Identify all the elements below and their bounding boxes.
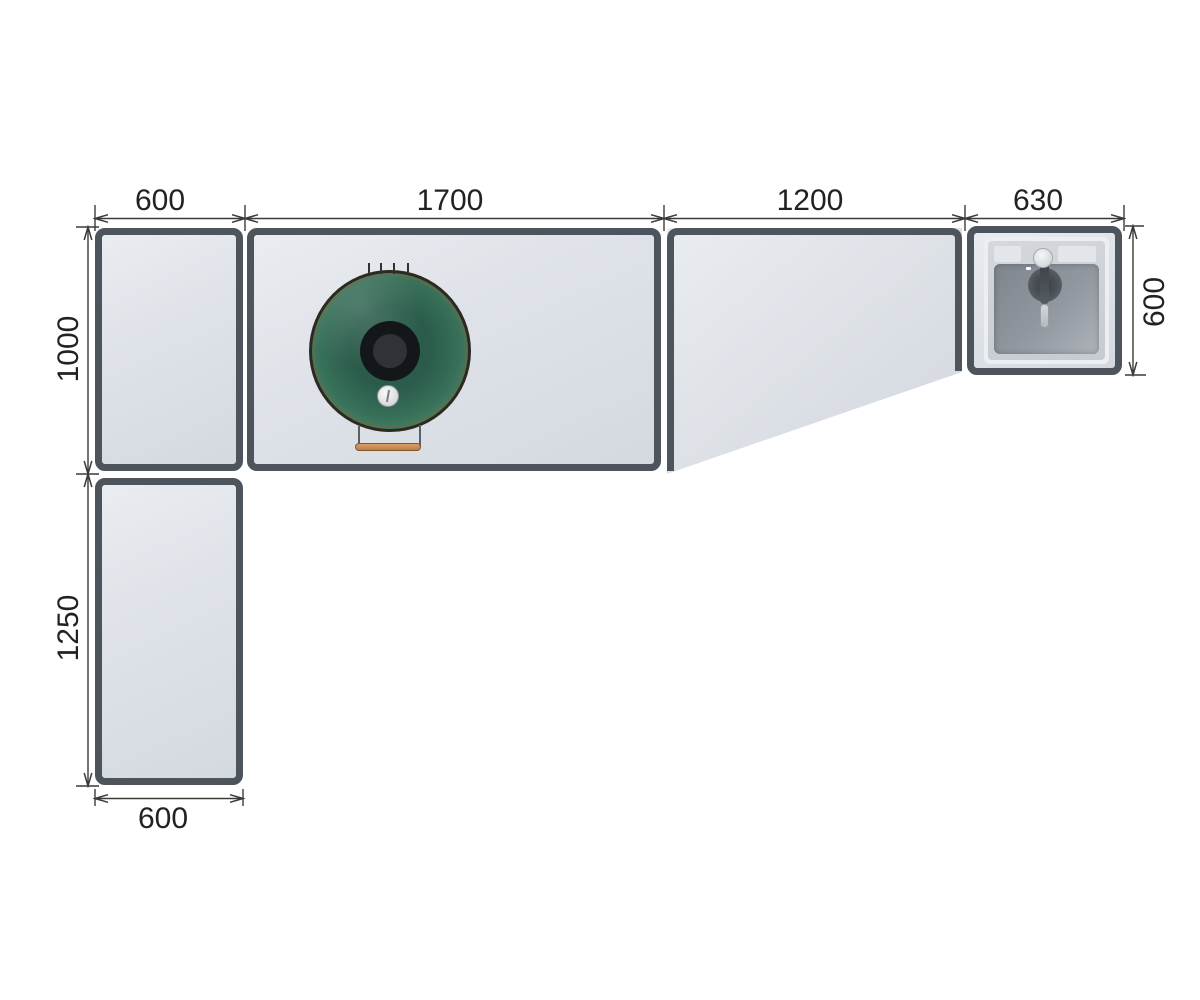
faucet-spout [1040,262,1049,304]
grill-hinge-tick [380,263,382,274]
dim-label-600-bottom: 600 [138,804,188,834]
dim-label-600-top: 600 [135,186,185,216]
sink-highlight [1026,267,1031,270]
kitchen-plan-canvas: 600 1700 1200 630 1000 1250 600 600 [0,0,1200,1000]
grill-top-vent-cap [373,334,407,368]
grill-hinge-tick [368,263,370,274]
worktop-surface [667,228,962,474]
grill-knob-slot [386,390,390,402]
faucet-base [1033,248,1053,268]
dim-label-1000: 1000 [54,316,84,383]
grill-daisy-wheel-knob [377,385,399,407]
module-return-cabinet [95,478,243,785]
grill-hinge-tick [393,263,395,274]
module-corner-cabinet [95,228,243,471]
faucet-handle [1040,304,1049,328]
sink-frame [984,237,1109,364]
grill-hinge-tick [407,263,409,274]
dim-label-1250: 1250 [54,595,84,662]
module-worktop-1200 [667,228,962,474]
dim-label-1200: 1200 [777,186,844,216]
grill-wooden-handle [355,443,421,451]
sink-deck [988,241,1105,360]
module-grill-cabinet [247,228,661,471]
dim-label-630: 630 [1013,186,1063,216]
kamado-grill [309,270,471,432]
module-sink-cabinet [967,226,1122,375]
dim-label-1700: 1700 [417,186,484,216]
sink-deck-panel-left [994,246,1021,262]
sink-deck-panel-right [1058,246,1096,262]
dim-label-600-right: 600 [1140,277,1170,327]
